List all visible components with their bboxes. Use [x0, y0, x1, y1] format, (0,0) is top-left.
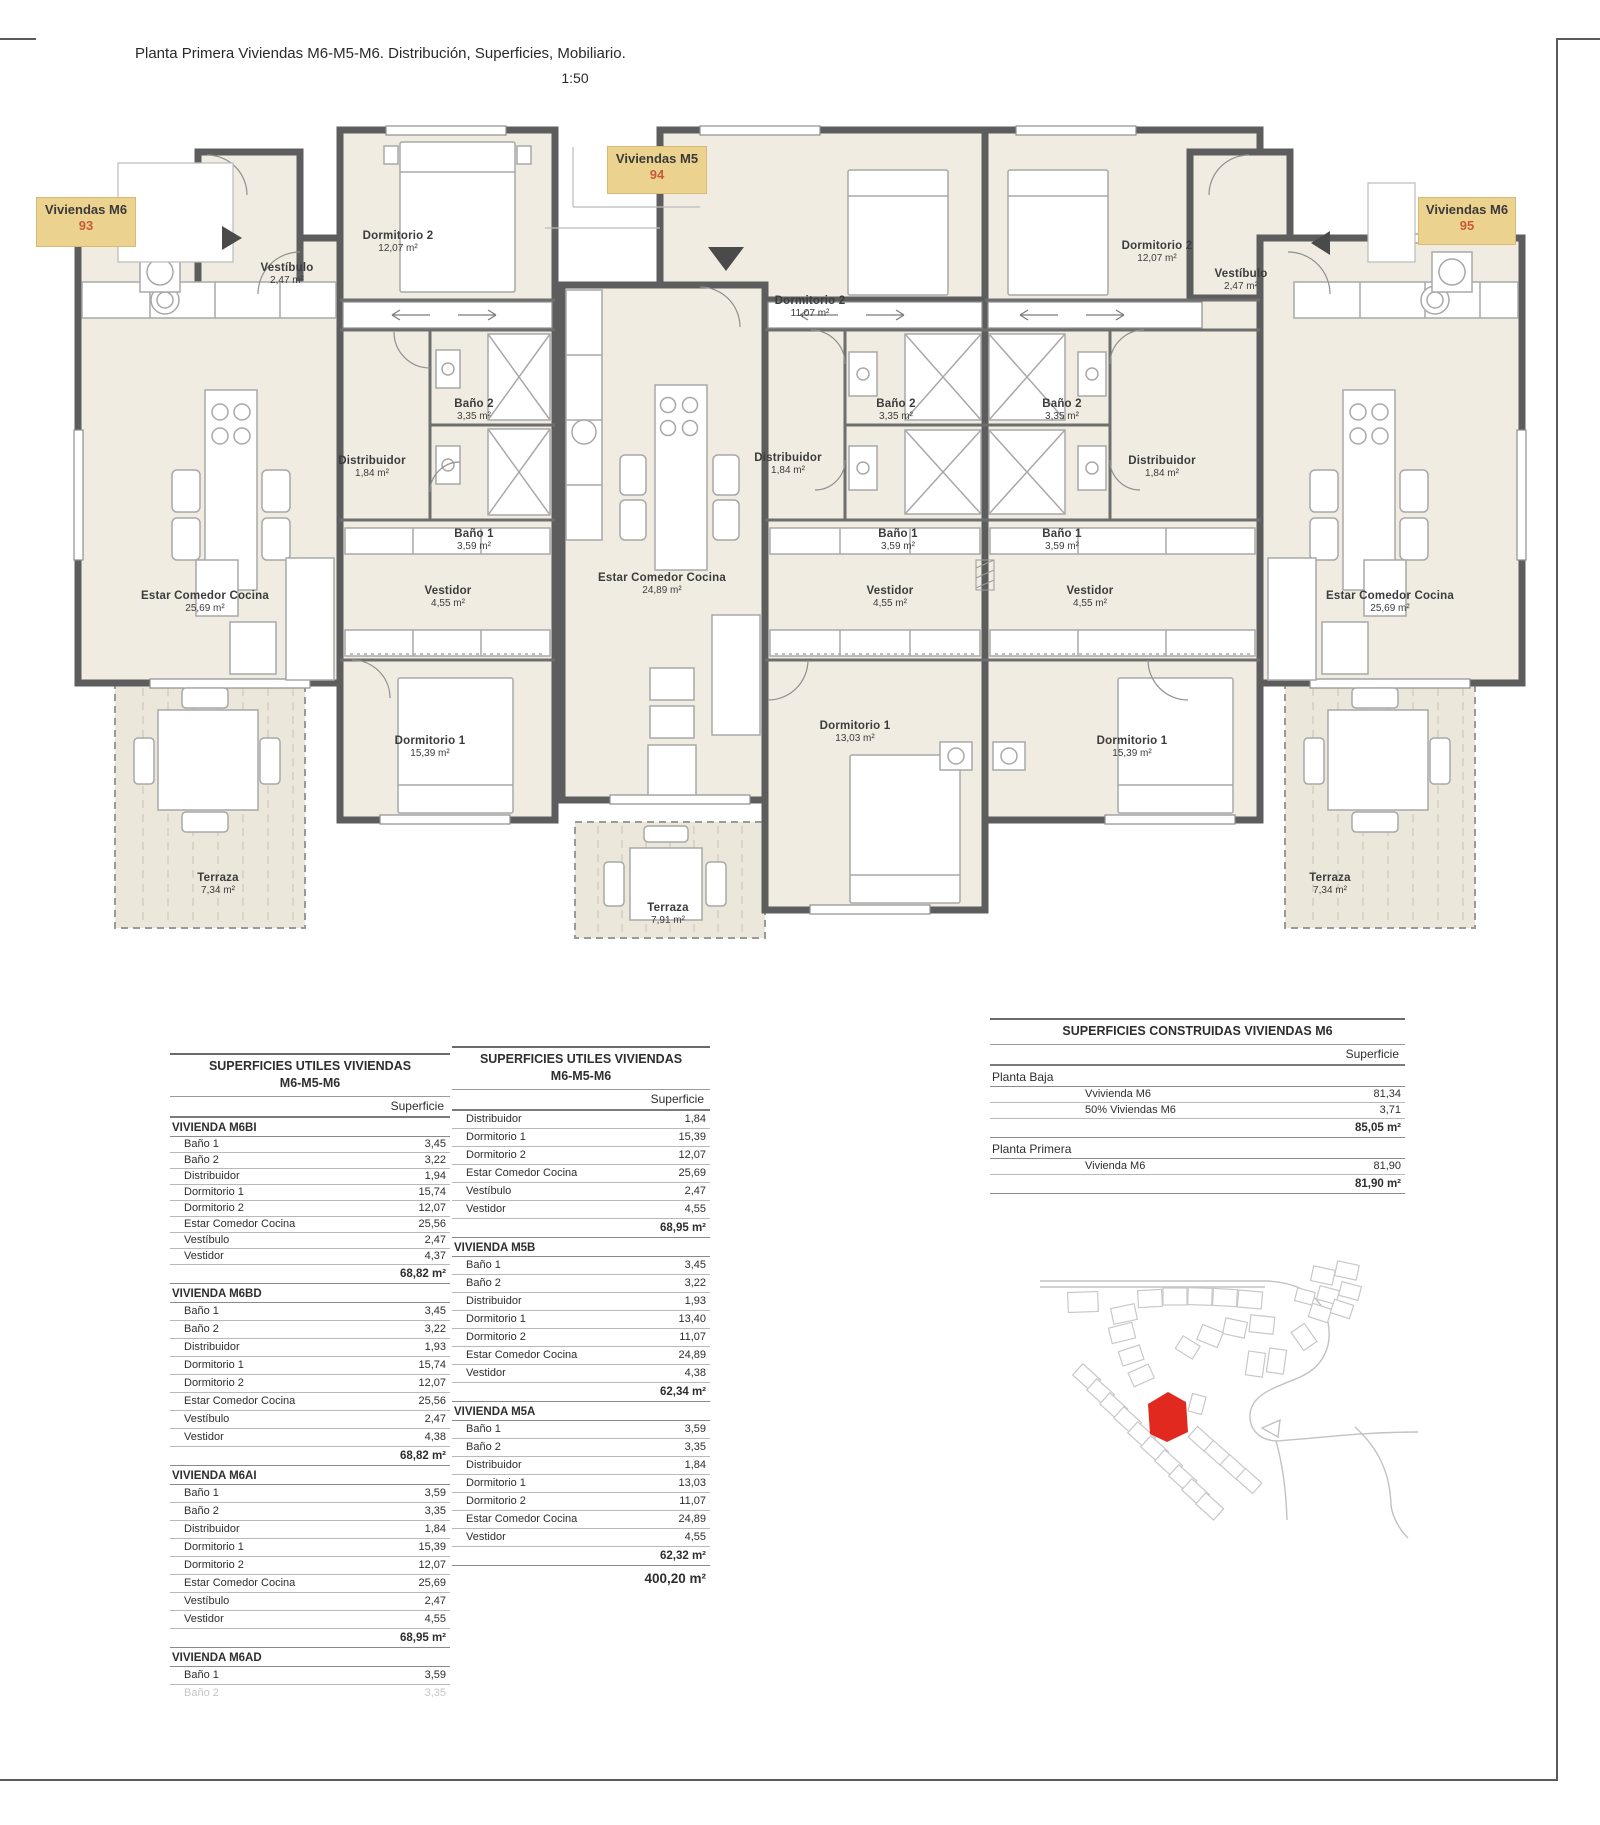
- row-label: Vvivienda M6: [1085, 1088, 1151, 1100]
- room-area: 2,47 m²: [1215, 281, 1268, 292]
- row-label: Dormitorio 2: [466, 1331, 526, 1343]
- room-area: 3,35 m²: [454, 411, 494, 422]
- room-label-93: Vestíbulo2,47 m²: [261, 262, 314, 286]
- table-row: Estar Comedor Cocina25,69: [452, 1165, 710, 1183]
- table-row: Distribuidor1,93: [170, 1339, 450, 1357]
- table-row: Baño 13,45: [452, 1257, 710, 1275]
- table-row: Dormitorio 115,39: [170, 1539, 450, 1557]
- row-label: Baño 2: [184, 1323, 219, 1335]
- table-row: Baño 13,59: [170, 1485, 450, 1503]
- table-row: 50% Viviendas M63,71: [990, 1103, 1405, 1119]
- row-value: 3,22: [685, 1277, 706, 1289]
- row-value: 3,35: [685, 1441, 706, 1453]
- room-name: Vestidor: [425, 585, 472, 597]
- row-value: 15,39: [418, 1541, 446, 1553]
- badge-number: 95: [1419, 218, 1515, 233]
- table-row: Estar Comedor Cocina25,56: [170, 1393, 450, 1411]
- row-label: Vestíbulo: [184, 1595, 229, 1607]
- room-name: Vestíbulo: [1215, 268, 1268, 280]
- row-label: Vivienda M6: [1085, 1160, 1145, 1172]
- table-row: Baño 13,59: [170, 1667, 450, 1685]
- room-area: 4,55 m²: [867, 598, 914, 609]
- row-value: 15,74: [418, 1186, 446, 1198]
- row-label: Vestidor: [466, 1367, 506, 1379]
- row-value: 3,59: [685, 1423, 706, 1435]
- table-row: Baño 13,45: [170, 1137, 450, 1153]
- row-value: 81,90: [1373, 1160, 1401, 1172]
- table-row: Vestidor4,38: [170, 1429, 450, 1447]
- room-name: Terraza: [647, 902, 688, 914]
- row-value: 1,84: [685, 1113, 706, 1125]
- room-name: Distribuidor: [1128, 455, 1196, 467]
- room-name: Dormitorio 2: [775, 295, 846, 307]
- row-label: Estar Comedor Cocina: [466, 1167, 577, 1179]
- table-row: Baño 23,35: [170, 1503, 450, 1521]
- room-name: Estar Comedor Cocina: [598, 572, 726, 584]
- room-name: Distribuidor: [754, 452, 822, 464]
- table-row: Vestíbulo2,47: [170, 1411, 450, 1429]
- row-label: Distribuidor: [466, 1295, 522, 1307]
- row-value: 24,89: [678, 1349, 706, 1361]
- room-name: Terraza: [197, 872, 238, 884]
- table-row: Vestíbulo2,47: [170, 1233, 450, 1249]
- row-label: Vestidor: [466, 1203, 506, 1215]
- table-title-line: SUPERFICIES CONSTRUIDAS VIVIENDAS M6: [990, 1023, 1405, 1040]
- row-label: Baño 1: [184, 1138, 219, 1150]
- row-label: Dormitorio 1: [466, 1313, 526, 1325]
- row-value: 12,07: [418, 1202, 446, 1214]
- row-label: Dormitorio 1: [466, 1477, 526, 1489]
- row-label: Distribuidor: [184, 1170, 240, 1182]
- row-label: Dormitorio 1: [466, 1131, 526, 1143]
- row-label: Vestidor: [184, 1431, 224, 1443]
- row-label: Vestidor: [184, 1613, 224, 1625]
- room-name: Baño 2: [454, 398, 494, 410]
- table-row: Vestidor4,37: [170, 1249, 450, 1265]
- row-value: 15,39: [678, 1131, 706, 1143]
- room-name: Baño 1: [454, 528, 494, 540]
- row-value: 3,45: [425, 1305, 446, 1317]
- drawing-sheet: Planta Primera Viviendas M6-M5-M6. Distr…: [0, 0, 1600, 1825]
- row-label: Estar Comedor Cocina: [466, 1349, 577, 1361]
- row-value: 3,71: [1380, 1104, 1401, 1116]
- row-value: 1,94: [425, 1170, 446, 1182]
- table-row: Baño 23,22: [170, 1321, 450, 1339]
- site-houses: [1068, 1261, 1362, 1520]
- room-label-93: Estar Comedor Cocina25,69 m²: [141, 590, 269, 614]
- table-row: Distribuidor1,84: [452, 1111, 710, 1129]
- room-label-94: Terraza7,91 m²: [647, 902, 688, 926]
- row-label: Vestidor: [184, 1250, 224, 1262]
- table-row: Estar Comedor Cocina25,56: [170, 1217, 450, 1233]
- table-row: Vestíbulo2,47: [452, 1183, 710, 1201]
- row-value: 25,69: [418, 1577, 446, 1589]
- table-row: Vestidor4,55: [452, 1529, 710, 1547]
- frame-bottom: [0, 1779, 1558, 1781]
- room-label-95: Baño 13,59 m²: [1042, 528, 1082, 552]
- table-utiles_left: SUPERFICIES UTILES VIVIENDASM6-M5-M6Supe…: [170, 1053, 450, 1702]
- table-row: Dormitorio 212,07: [170, 1201, 450, 1217]
- row-value: 3,22: [425, 1323, 446, 1335]
- table-section-total: 68,82 m²: [170, 1447, 450, 1466]
- row-label: Distribuidor: [184, 1341, 240, 1353]
- row-value: 3,45: [425, 1138, 446, 1150]
- table-title: SUPERFICIES UTILES VIVIENDASM6-M5-M6: [452, 1046, 710, 1090]
- row-value: 2,47: [425, 1413, 446, 1425]
- room-label-95: Vestíbulo2,47 m²: [1215, 268, 1268, 292]
- room-area: 3,59 m²: [454, 541, 494, 552]
- row-value: 1,93: [425, 1341, 446, 1353]
- row-label: Vestíbulo: [184, 1413, 229, 1425]
- room-area: 15,39 m²: [395, 748, 466, 759]
- room-area: 4,55 m²: [1067, 598, 1114, 609]
- table-row: Vestidor4,55: [452, 1201, 710, 1219]
- site-plan-map: [1030, 1245, 1430, 1545]
- row-value: 3,45: [685, 1259, 706, 1271]
- table-section-header: VIVIENDA M6AD: [170, 1648, 450, 1667]
- badge-number: 93: [37, 218, 135, 233]
- table-col-header: Superficie: [990, 1045, 1405, 1066]
- vivienda-badge-93: Viviendas M693: [36, 197, 136, 247]
- row-label: Dormitorio 2: [184, 1377, 244, 1389]
- table-title: SUPERFICIES CONSTRUIDAS VIVIENDAS M6: [990, 1018, 1405, 1045]
- row-label: Dormitorio 2: [466, 1149, 526, 1161]
- row-label: Baño 1: [466, 1423, 501, 1435]
- row-label: Distribuidor: [466, 1113, 522, 1125]
- table-section-total: 68,95 m²: [452, 1219, 710, 1238]
- room-label-93: Baño 23,35 m²: [454, 398, 494, 422]
- table-row: Vestidor4,38: [452, 1365, 710, 1383]
- table-row: Vestidor4,55: [170, 1611, 450, 1629]
- room-label-93: Distribuidor1,84 m²: [338, 455, 406, 479]
- row-value: 3,59: [425, 1669, 446, 1681]
- row-label: Vestíbulo: [466, 1185, 511, 1197]
- room-label-95: Distribuidor1,84 m²: [1128, 455, 1196, 479]
- table-row: Baño 13,45: [170, 1303, 450, 1321]
- row-value: 25,56: [418, 1395, 446, 1407]
- row-value: 4,37: [425, 1250, 446, 1262]
- table-section-total: 62,34 m²: [452, 1383, 710, 1402]
- table-section-total: 85,05 m²: [990, 1119, 1405, 1138]
- table-section-total: 62,32 m²: [452, 1547, 710, 1566]
- table-section-header: VIVIENDA M5B: [452, 1238, 710, 1257]
- room-name: Vestíbulo: [261, 262, 314, 274]
- table-row: Dormitorio 115,74: [170, 1185, 450, 1201]
- room-area: 12,07 m²: [363, 243, 434, 254]
- row-label: Baño 1: [184, 1669, 219, 1681]
- room-name: Baño 1: [878, 528, 918, 540]
- table-row: Dormitorio 115,39: [452, 1129, 710, 1147]
- table-section-total: 68,95 m²: [170, 1629, 450, 1648]
- room-area: 1,84 m²: [338, 468, 406, 479]
- table-construidas: SUPERFICIES CONSTRUIDAS VIVIENDAS M6Supe…: [990, 1018, 1405, 1194]
- table-row: Vivienda M681,90: [990, 1159, 1405, 1175]
- row-value: 81,34: [1373, 1088, 1401, 1100]
- row-value: 3,22: [425, 1154, 446, 1166]
- row-value: 25,56: [418, 1218, 446, 1230]
- table-row: Dormitorio 115,74: [170, 1357, 450, 1375]
- row-label: Estar Comedor Cocina: [184, 1218, 295, 1230]
- room-label-95: Dormitorio 212,07 m²: [1122, 240, 1193, 264]
- vivienda-badge-94: Viviendas M594: [607, 146, 707, 194]
- table-row: Estar Comedor Cocina24,89: [452, 1347, 710, 1365]
- room-area: 1,84 m²: [1128, 468, 1196, 479]
- room-name: Dormitorio 2: [1122, 240, 1193, 252]
- room-label-94: Baño 13,59 m²: [878, 528, 918, 552]
- row-value: 2,47: [685, 1185, 706, 1197]
- room-name: Terraza: [1309, 872, 1350, 884]
- row-value: 11,07: [679, 1331, 706, 1343]
- room-area: 12,07 m²: [1122, 253, 1193, 264]
- room-label-94: Vestidor4,55 m²: [867, 585, 914, 609]
- row-label: Estar Comedor Cocina: [184, 1395, 295, 1407]
- room-area: 7,91 m²: [647, 915, 688, 926]
- row-value: 2,47: [425, 1595, 446, 1607]
- table-row: Dormitorio 212,07: [452, 1147, 710, 1165]
- room-name: Baño 2: [876, 398, 916, 410]
- room-name: Baño 1: [1042, 528, 1082, 540]
- badge-label: Viviendas M6: [1419, 203, 1515, 218]
- room-name: Vestidor: [867, 585, 914, 597]
- table-row: Baño 23,22: [452, 1275, 710, 1293]
- row-value: 12,07: [418, 1559, 446, 1571]
- table-row: Vestíbulo2,47: [170, 1593, 450, 1611]
- row-label: Distribuidor: [184, 1523, 240, 1535]
- row-label: Vestidor: [466, 1531, 506, 1543]
- table-section-header: Planta Baja: [990, 1066, 1405, 1087]
- table-row: Dormitorio 211,07: [452, 1329, 710, 1347]
- table-row: Baño 23,35: [452, 1439, 710, 1457]
- room-label-93: Vestidor4,55 m²: [425, 585, 472, 609]
- room-area: 24,89 m²: [598, 585, 726, 596]
- table-row: Dormitorio 212,07: [170, 1375, 450, 1393]
- row-value: 13,40: [678, 1313, 706, 1325]
- row-value: 12,07: [418, 1377, 446, 1389]
- room-area: 2,47 m²: [261, 275, 314, 286]
- table-section-header: VIVIENDA M6BI: [170, 1118, 450, 1137]
- row-value: 12,07: [678, 1149, 706, 1161]
- row-value: 3,35: [425, 1505, 446, 1517]
- room-area: 11,07 m²: [775, 308, 846, 319]
- table-row: Dormitorio 113,40: [452, 1311, 710, 1329]
- room-name: Vestidor: [1067, 585, 1114, 597]
- room-area: 3,35 m²: [1042, 411, 1082, 422]
- room-area: 4,55 m²: [425, 598, 472, 609]
- table-title: SUPERFICIES UTILES VIVIENDASM6-M5-M6: [170, 1053, 450, 1097]
- table-section-total: 68,82 m²: [170, 1265, 450, 1284]
- row-label: Dormitorio 1: [184, 1541, 244, 1553]
- room-label-94: Baño 23,35 m²: [876, 398, 916, 422]
- badge-number: 94: [608, 167, 706, 182]
- badge-label: Viviendas M5: [608, 152, 706, 167]
- table-title-line: SUPERFICIES UTILES VIVIENDAS: [452, 1051, 710, 1068]
- room-area: 15,39 m²: [1097, 748, 1168, 759]
- table-title-line: M6-M5-M6: [170, 1075, 450, 1092]
- row-value: 15,74: [418, 1359, 446, 1371]
- room-label-94: Dormitorio 211,07 m²: [775, 295, 846, 319]
- table-grand-total: 400,20 m²: [452, 1566, 710, 1586]
- table-row: Estar Comedor Cocina24,89: [452, 1511, 710, 1529]
- row-value: 1,93: [685, 1295, 706, 1307]
- row-value: 24,89: [678, 1513, 706, 1525]
- row-label: Baño 2: [466, 1277, 501, 1289]
- table-row: Vvivienda M681,34: [990, 1087, 1405, 1103]
- table-row-partial: Baño 23,35: [170, 1685, 450, 1702]
- table-title-line: M6-M5-M6: [452, 1068, 710, 1085]
- table-row: Estar Comedor Cocina25,69: [170, 1575, 450, 1593]
- table-title-line: SUPERFICIES UTILES VIVIENDAS: [170, 1058, 450, 1075]
- room-name: Dormitorio 1: [820, 720, 891, 732]
- table-col-header: Superficie: [452, 1090, 710, 1111]
- table-row: Distribuidor1,84: [452, 1457, 710, 1475]
- room-label-95: Terraza7,34 m²: [1309, 872, 1350, 896]
- table-row: Distribuidor1,84: [170, 1521, 450, 1539]
- table-utiles_middle: SUPERFICIES UTILES VIVIENDASM6-M5-M6Supe…: [452, 1046, 710, 1586]
- row-value: 1,84: [425, 1523, 446, 1535]
- room-name: Estar Comedor Cocina: [1326, 590, 1454, 602]
- row-value: 25,69: [678, 1167, 706, 1179]
- room-label-93: Dormitorio 115,39 m²: [395, 735, 466, 759]
- room-name: Distribuidor: [338, 455, 406, 467]
- room-name: Dormitorio 2: [363, 230, 434, 242]
- room-label-93: Baño 13,59 m²: [454, 528, 494, 552]
- room-label-93: Terraza7,34 m²: [197, 872, 238, 896]
- row-value: 1,84: [685, 1459, 706, 1471]
- row-value: 4,55: [685, 1531, 706, 1543]
- room-area: 13,03 m²: [820, 733, 891, 744]
- row-label: Dormitorio 2: [466, 1495, 526, 1507]
- row-label: Baño 2: [184, 1154, 219, 1166]
- room-label-94: Dormitorio 113,03 m²: [820, 720, 891, 744]
- table-section-header: VIVIENDA M6BD: [170, 1284, 450, 1303]
- row-label: Estar Comedor Cocina: [466, 1513, 577, 1525]
- row-value: 2,47: [425, 1234, 446, 1246]
- badge-label: Viviendas M6: [37, 203, 135, 218]
- table-section-total: 81,90 m²: [990, 1175, 1405, 1194]
- row-label: Dormitorio 2: [184, 1202, 244, 1214]
- row-label: Baño 2: [184, 1505, 219, 1517]
- room-area: 1,84 m²: [754, 465, 822, 476]
- site-marker-red-house: [1148, 1392, 1188, 1442]
- table-section-header: VIVIENDA M6AI: [170, 1466, 450, 1485]
- row-label: Vestíbulo: [184, 1234, 229, 1246]
- room-area: 25,69 m²: [1326, 603, 1454, 614]
- row-label: Baño 2: [466, 1441, 501, 1453]
- row-value: 4,38: [685, 1367, 706, 1379]
- row-value: 4,55: [685, 1203, 706, 1215]
- row-label: Dormitorio 1: [184, 1186, 244, 1198]
- room-name: Dormitorio 1: [1097, 735, 1168, 747]
- room-name: Dormitorio 1: [395, 735, 466, 747]
- row-value: 4,38: [425, 1431, 446, 1443]
- room-label-95: Estar Comedor Cocina25,69 m²: [1326, 590, 1454, 614]
- row-label: Baño 1: [184, 1487, 219, 1499]
- room-label-94: Estar Comedor Cocina24,89 m²: [598, 572, 726, 596]
- row-label: Dormitorio 1: [184, 1359, 244, 1371]
- table-col-header: Superficie: [170, 1097, 450, 1118]
- row-label: Distribuidor: [466, 1459, 522, 1471]
- row-label: Baño 1: [184, 1305, 219, 1317]
- room-area: 25,69 m²: [141, 603, 269, 614]
- room-area: 7,34 m²: [197, 885, 238, 896]
- room-label-93: Dormitorio 212,07 m²: [363, 230, 434, 254]
- floor-plan: [0, 0, 1600, 980]
- room-label-95: Baño 23,35 m²: [1042, 398, 1082, 422]
- room-label-94: Distribuidor1,84 m²: [754, 452, 822, 476]
- row-value: 11,07: [679, 1495, 706, 1507]
- room-label-95: Dormitorio 115,39 m²: [1097, 735, 1168, 759]
- room-area: 3,59 m²: [1042, 541, 1082, 552]
- table-section-header: VIVIENDA M5A: [452, 1402, 710, 1421]
- table-row: Dormitorio 212,07: [170, 1557, 450, 1575]
- table-row: Distribuidor1,94: [170, 1169, 450, 1185]
- room-label-95: Vestidor4,55 m²: [1067, 585, 1114, 609]
- room-area: 7,34 m²: [1309, 885, 1350, 896]
- row-value: 4,55: [425, 1613, 446, 1625]
- table-row: Baño 13,59: [452, 1421, 710, 1439]
- row-value: 13,03: [678, 1477, 706, 1489]
- table-row: Dormitorio 113,03: [452, 1475, 710, 1493]
- room-name: Baño 2: [1042, 398, 1082, 410]
- room-name: Estar Comedor Cocina: [141, 590, 269, 602]
- room-area: 3,59 m²: [878, 541, 918, 552]
- row-label: 50% Viviendas M6: [1085, 1104, 1176, 1116]
- table-row: Baño 23,22: [170, 1153, 450, 1169]
- table-row: Distribuidor1,93: [452, 1293, 710, 1311]
- room-area: 3,35 m²: [876, 411, 916, 422]
- table-section-header: Planta Primera: [990, 1138, 1405, 1159]
- row-label: Dormitorio 2: [184, 1559, 244, 1571]
- row-value: 3,59: [425, 1487, 446, 1499]
- row-label: Baño 1: [466, 1259, 501, 1271]
- row-label: Estar Comedor Cocina: [184, 1577, 295, 1589]
- vivienda-badge-95: Viviendas M695: [1418, 197, 1516, 245]
- table-row: Dormitorio 211,07: [452, 1493, 710, 1511]
